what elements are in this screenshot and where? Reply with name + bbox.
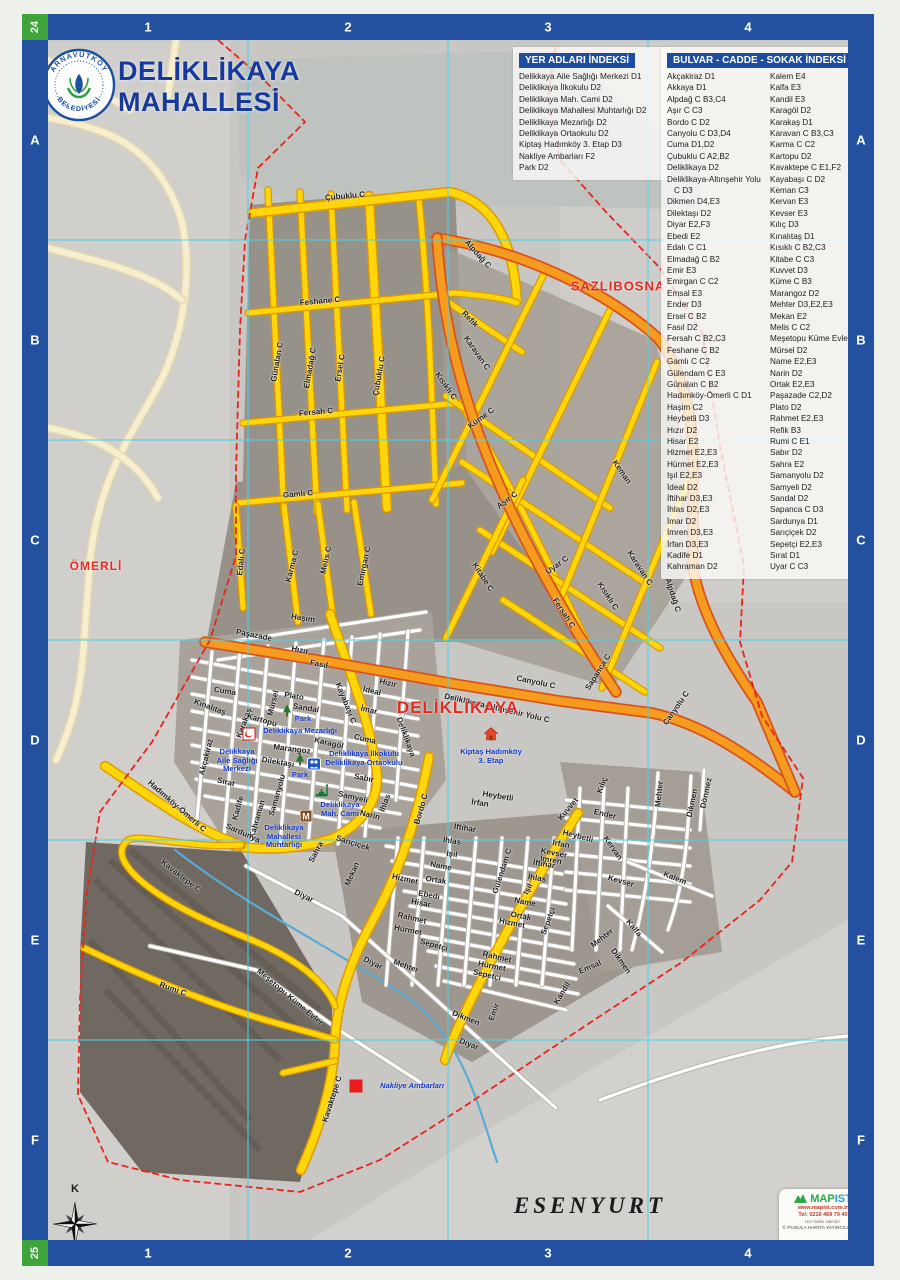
grid-col-label-top: 4 <box>744 20 751 35</box>
index-entry: Feshane C B2 <box>667 345 764 356</box>
neighbor-label-esenyurt: ESENYURT <box>514 1193 666 1219</box>
index-entry: Fasıl D2 <box>667 322 764 333</box>
title-line-2: MAHALLESİ <box>118 87 300 118</box>
index-entry: Aşır C C3 <box>667 105 764 116</box>
mosque-icon <box>315 783 329 797</box>
mapist-mountain-icon <box>794 1194 807 1203</box>
grid-col-label-top: 1 <box>144 20 151 35</box>
grid-row-label-left: A <box>30 133 39 148</box>
landmark-label: DeliklikayaMahallesiMuhtarlığı <box>264 824 303 850</box>
index-entry: Deliklikaya D2 <box>667 162 764 173</box>
index-entry: Elmadağ C B2 <box>667 254 764 265</box>
school-icon <box>307 758 321 771</box>
index-entry: Ebedi E2 <box>667 231 764 242</box>
landmark-label: DelikkayaAile SağlığıMerkezi <box>217 748 258 774</box>
grid-row-label-left: C <box>30 533 39 548</box>
index-entry: Işıl E2,E3 <box>667 470 764 481</box>
index-entry: İdeal D2 <box>667 482 764 493</box>
index-entry: Emsal E3 <box>667 288 764 299</box>
page-title: DELİKLİKAYA MAHALLESİ <box>118 56 300 118</box>
index-entry: Ersel C B2 <box>667 311 764 322</box>
map-sheet-number-bottom: 25 <box>22 1240 48 1266</box>
red-crescent-icon <box>243 728 256 741</box>
index-entry: Çubuklu C A2,B2 <box>667 151 764 162</box>
streets-index-panel: BULVAR - CADDE - SOKAK İNDEKSİ Akçakiraz… <box>661 47 873 579</box>
landmark-label: Kiptaş Hadımköy3. Etap <box>460 748 522 765</box>
index-entry: Park D2 <box>519 162 665 173</box>
compass-north-label: K <box>71 1183 79 1195</box>
map-sheet-number-top: 24 <box>22 14 48 40</box>
muhtarlik-m-icon: M <box>300 810 312 822</box>
index-entry: Bordo C D2 <box>667 117 764 128</box>
grid-col-label-bottom: 2 <box>344 1246 351 1261</box>
index-entry: Deliklikaya Mahallesi Muhtarlığı D2 <box>519 105 665 116</box>
tree-icon <box>282 705 293 718</box>
index-entry: Ender D3 <box>667 299 764 310</box>
tree-icon <box>295 754 306 767</box>
places-index-title: YER ADLARI İNDEKSİ <box>519 53 635 68</box>
grid-row-label-left: E <box>31 933 40 948</box>
brand-map: MAP <box>810 1193 834 1205</box>
index-entry: Heybetli D3 <box>667 413 764 424</box>
region-label: ÖMERLİ <box>70 559 123 573</box>
grid-row-label-left: F <box>31 1133 39 1148</box>
index-entry: İftihar D3,E3 <box>667 493 764 504</box>
landmark-label: Deliklikaya Mezarlığı <box>263 727 337 736</box>
house-icon <box>484 728 498 741</box>
region-label: SAZLIBOSNA <box>571 279 666 294</box>
region-label: DELİKLİKAYA <box>397 698 519 718</box>
index-entry: Nakliye Ambarları F2 <box>519 151 665 162</box>
index-entry: Cuma D1,D2 <box>667 139 764 150</box>
index-entry: Hızır D2 <box>667 425 764 436</box>
index-entry: Dilektaşı D2 <box>667 208 764 219</box>
index-entry: Hizmet E2,E3 <box>667 447 764 458</box>
warehouse-icon <box>350 1080 363 1093</box>
index-entry: Hisar E2 <box>667 436 764 447</box>
svg-text:M: M <box>302 812 310 822</box>
grid-col-label-bottom: 3 <box>544 1246 551 1261</box>
index-entry: Kahraman D2 <box>667 561 764 572</box>
index-entry: Canyolu C D3,D4 <box>667 128 764 139</box>
index-entry: Deliklikaya Ortaokulu D2 <box>519 128 665 139</box>
landmark-label: Park <box>295 715 311 724</box>
municipality-logo: ARNAVUTKÖY BELEDİYESİ <box>42 48 116 122</box>
index-entry: İhlas D2,E3 <box>667 504 764 515</box>
grid-row-label-left: B <box>30 333 39 348</box>
index-entry: Emir E3 <box>667 265 764 276</box>
title-line-1: DELİKLİKAYA <box>118 56 300 87</box>
index-entry: Deliklikaya-Altınşehir Yolu C D3 <box>667 174 764 197</box>
index-entry: Deliklikaya Mah. Cami D2 <box>519 94 665 105</box>
index-entry: İmren D3,E3 <box>667 527 764 538</box>
index-entry: Akçakiraz D1 <box>667 71 764 82</box>
places-index-panel: YER ADLARI İNDEKSİ Delikkaya Aile Sağlığ… <box>513 47 671 180</box>
index-entry: Günalan C B2 <box>667 379 764 390</box>
index-entry: Emirgan C C2 <box>667 276 764 287</box>
index-entry: Fersah C B2,C3 <box>667 333 764 344</box>
index-entry: Dikmen D4,E3 <box>667 196 764 207</box>
landmark-label: Nakliye Ambarları <box>380 1082 444 1091</box>
frame-band-left <box>22 14 48 1266</box>
street-label: Işıl <box>446 849 458 860</box>
index-entry: Kadife D1 <box>667 550 764 561</box>
landmark-label: Park <box>292 771 308 780</box>
index-entry: İmar D2 <box>667 516 764 527</box>
index-entry: Edalı C C1 <box>667 242 764 253</box>
streets-index-col-left: Akçakiraz D1Akkaya D1Alpdağ C B3,C4Aşır … <box>667 71 764 573</box>
index-entry: İrfan D3,E3 <box>667 539 764 550</box>
index-entry: Diyar E2,F3 <box>667 219 764 230</box>
index-entry: Hadımköy-Ömerli C D1 <box>667 390 764 401</box>
index-entry: Gamlı C C2 <box>667 356 764 367</box>
grid-col-label-bottom: 4 <box>744 1246 751 1261</box>
index-entry: Haşim C2 <box>667 402 764 413</box>
grid-row-label-right: F <box>857 1133 865 1148</box>
landmark-label: Deliklikaya İlkokuluDeliklikaya Ortaokul… <box>325 750 402 767</box>
places-index-list: Delikkaya Aile Sağlığı Merkezi D1Delikli… <box>519 71 665 174</box>
index-entry: Alpdağ C B3,C4 <box>667 94 764 105</box>
frame-band-right <box>848 14 874 1266</box>
index-entry: Deliklikaya Mezarlığı D2 <box>519 117 665 128</box>
grid-row-label-right: A <box>856 133 865 148</box>
grid-row-label-right: C <box>856 533 865 548</box>
streets-index-title: BULVAR - CADDE - SOKAK İNDEKSİ <box>667 53 852 68</box>
landmark-label: DeliklikayaMah. Cami <box>320 801 359 818</box>
grid-col-label-top: 2 <box>344 20 351 35</box>
grid-row-label-right: E <box>857 933 866 948</box>
grid-row-label-right: B <box>856 333 865 348</box>
index-entry: Delikkaya Aile Sağlığı Merkezi D1 <box>519 71 665 82</box>
grid-col-label-top: 3 <box>544 20 551 35</box>
index-entry: Kiptaş Hadımköy 3. Etap D3 <box>519 139 665 150</box>
grid-row-label-left: D <box>30 733 39 748</box>
index-entry: Akkaya D1 <box>667 82 764 93</box>
index-entry: Gülendam C E3 <box>667 368 764 379</box>
grid-row-label-right: D <box>856 733 865 748</box>
index-entry: Hürmet E2,E3 <box>667 459 764 470</box>
index-entry: Deliklikaya İlkokulu D2 <box>519 82 665 93</box>
grid-col-label-bottom: 1 <box>144 1246 151 1261</box>
